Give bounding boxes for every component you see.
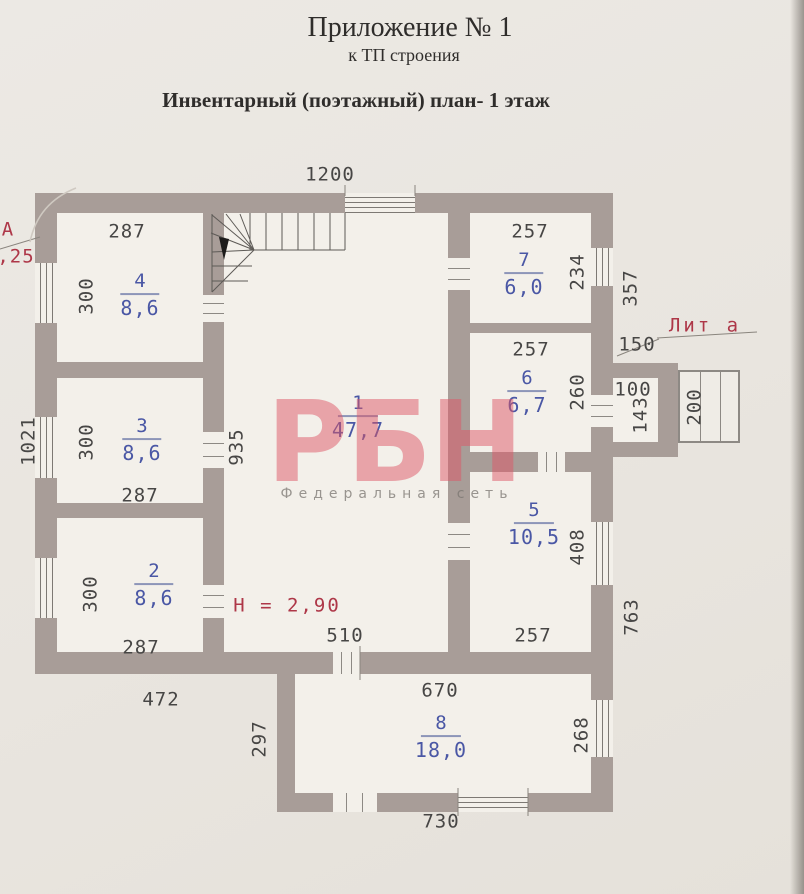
dimension-label: 1200 [305, 166, 355, 185]
dimension-label: 1021 [20, 416, 39, 466]
room-label: 76,0 [504, 250, 543, 300]
room-area: 6,0 [504, 274, 543, 300]
dimension-label: 234 [569, 253, 588, 290]
dimension-label: 257 [512, 341, 549, 360]
room-label: 48,6 [120, 271, 159, 321]
room-number: 8 [421, 713, 460, 737]
room-number: 4 [120, 271, 159, 295]
dimension-label: 935 [228, 428, 247, 465]
dimension-label: 257 [514, 627, 551, 646]
dimension-label: 200 [686, 388, 705, 425]
room-number: 7 [504, 250, 543, 274]
room-label: 28,6 [134, 561, 173, 611]
photo-edge-shadow [790, 0, 804, 894]
dimension-label: 300 [78, 423, 97, 460]
dimension-label: 268 [573, 716, 592, 753]
dimension-label: 300 [82, 575, 101, 612]
dimension-label: 287 [108, 223, 145, 242]
room-number: 3 [122, 416, 161, 440]
dimension-label: 143 [632, 396, 651, 433]
room-label: 38,6 [122, 416, 161, 466]
scan-page: Приложение № 1 к ТП строения Инвентарный… [0, 0, 804, 894]
dimension-label: 287 [121, 487, 158, 506]
dimension-label: 257 [511, 223, 548, 242]
dimension-label: 730 [422, 813, 459, 832]
watermark-tagline: Федеральная сеть [281, 486, 514, 502]
dimension-label: 670 [421, 682, 458, 701]
room-area: 18,0 [415, 737, 467, 763]
dimension-label: 300 [78, 277, 97, 314]
watermark-brand: РБН [266, 387, 521, 499]
room-label: 818,0 [415, 713, 467, 763]
room-area: 8,6 [120, 295, 159, 321]
dimension-label: 260 [569, 373, 588, 410]
room-area: 10,5 [508, 524, 560, 550]
dimension-label: 472 [142, 691, 179, 710]
dimension-label: 150 [618, 336, 655, 355]
dimension-label: 408 [569, 528, 588, 565]
dimension-label: 763 [623, 598, 642, 635]
room-area: 8,6 [134, 585, 173, 611]
dimension-label: 510 [326, 627, 363, 646]
room-area: 8,6 [122, 440, 161, 466]
room-number: 2 [134, 561, 173, 585]
dimension-label: 357 [622, 269, 641, 306]
dimension-label: 297 [251, 720, 270, 757]
dimension-label: 287 [122, 639, 159, 658]
